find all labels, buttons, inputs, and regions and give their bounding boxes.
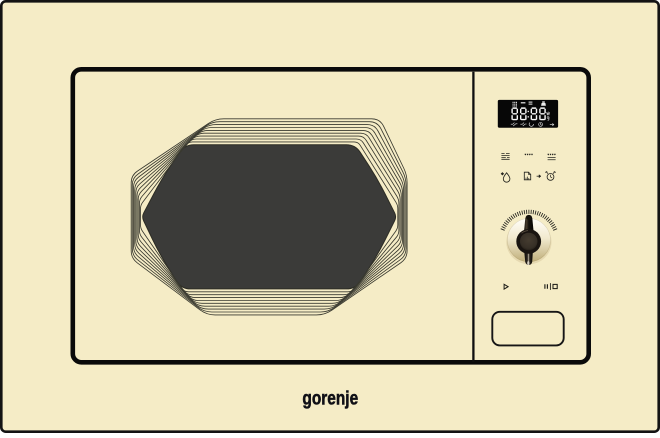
svg-text:gorenje: gorenje xyxy=(302,387,358,409)
